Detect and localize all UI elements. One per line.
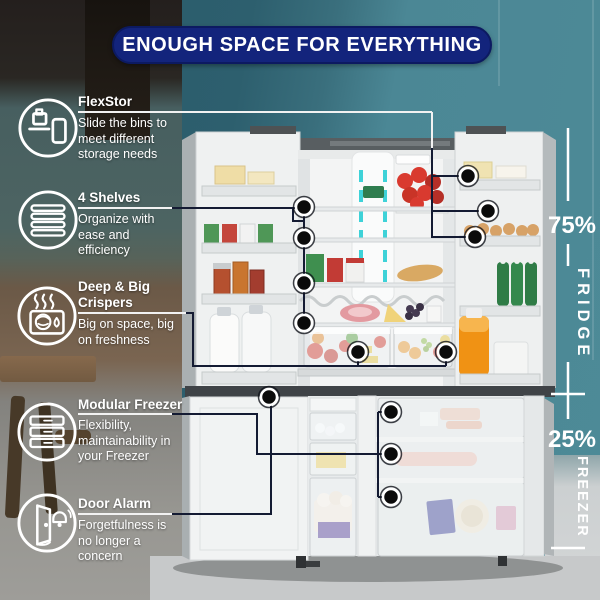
feature-desc-alarm: Forgetfulness is no longer a concern	[78, 518, 182, 565]
feature-title-freezer: Modular Freezer	[78, 397, 194, 413]
feature-desc-crispers: Big on space, big on freshness	[78, 317, 182, 348]
freezer-drawers-icon	[16, 401, 78, 463]
cabinet-gap	[185, 386, 555, 397]
door-alarm-bell-icon	[16, 492, 78, 554]
crisper-steam-icon	[16, 285, 78, 347]
crisper-drawers	[298, 327, 455, 376]
four-shelves-icon	[17, 189, 79, 251]
fridge-right-door	[455, 126, 556, 388]
feature-title-shelves: 4 Shelves	[78, 190, 194, 206]
feature-title-crispers: Deep & Big Crispers	[78, 279, 194, 311]
freezer-right-drawers	[376, 398, 526, 556]
freezer-section	[182, 396, 554, 568]
feature-desc-flexstor: Slide the bins to meet different storage…	[78, 116, 182, 163]
fridge-top-band	[296, 138, 461, 152]
headline-banner: ENOUGH SPACE FOR EVERYTHING	[112, 26, 492, 64]
fridge-left-door	[182, 126, 300, 388]
feature-title-flexstor: FlexStor	[78, 94, 194, 110]
headline-text: ENOUGH SPACE FOR EVERYTHING	[122, 34, 482, 57]
flexstor-bins-icon	[17, 97, 79, 159]
scene: 75% FRIDGE 25% FREEZER ENOUGH SPACE FOR …	[0, 0, 600, 600]
brand-badge	[363, 186, 384, 198]
feature-title-alarm: Door Alarm	[78, 496, 194, 512]
fridge-interior	[298, 150, 455, 386]
feature-desc-freezer: Flexibility, maintainability in your Fre…	[78, 418, 182, 465]
feature-desc-shelves: Organize with ease and efficiency	[78, 212, 182, 259]
